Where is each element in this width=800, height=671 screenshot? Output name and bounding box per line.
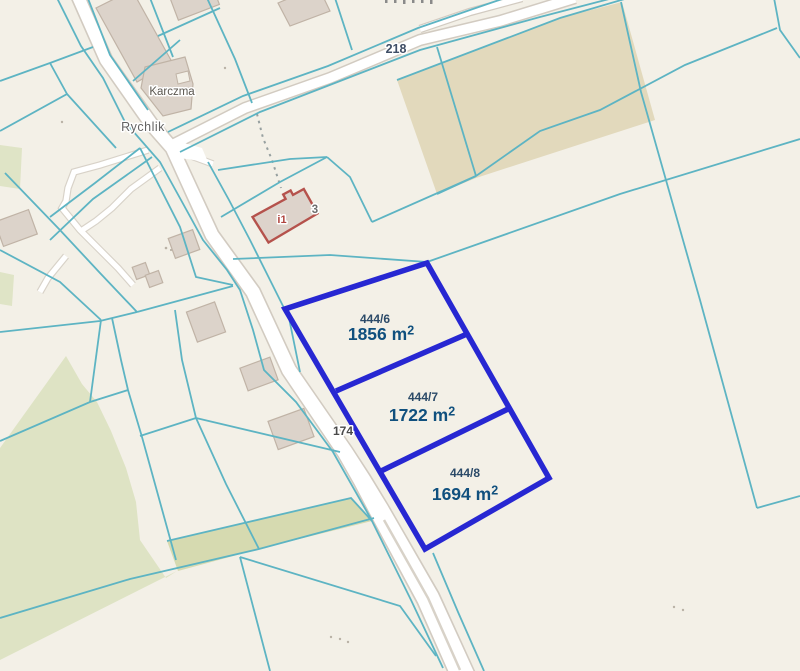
- svg-text:444/8: 444/8: [450, 466, 480, 480]
- svg-text:1856 m2: 1856 m2: [348, 324, 414, 345]
- svg-text:218: 218: [386, 42, 407, 56]
- svg-text:i1: i1: [277, 214, 286, 226]
- svg-text:Karczma: Karczma: [149, 86, 195, 98]
- svg-text:Rychlik: Rychlik: [121, 120, 165, 134]
- svg-text:174: 174: [333, 424, 353, 438]
- svg-text:1694 m2: 1694 m2: [432, 484, 498, 505]
- svg-text:1722 m2: 1722 m2: [389, 405, 455, 426]
- svg-text:444/7: 444/7: [408, 390, 438, 404]
- svg-text:3: 3: [312, 204, 318, 216]
